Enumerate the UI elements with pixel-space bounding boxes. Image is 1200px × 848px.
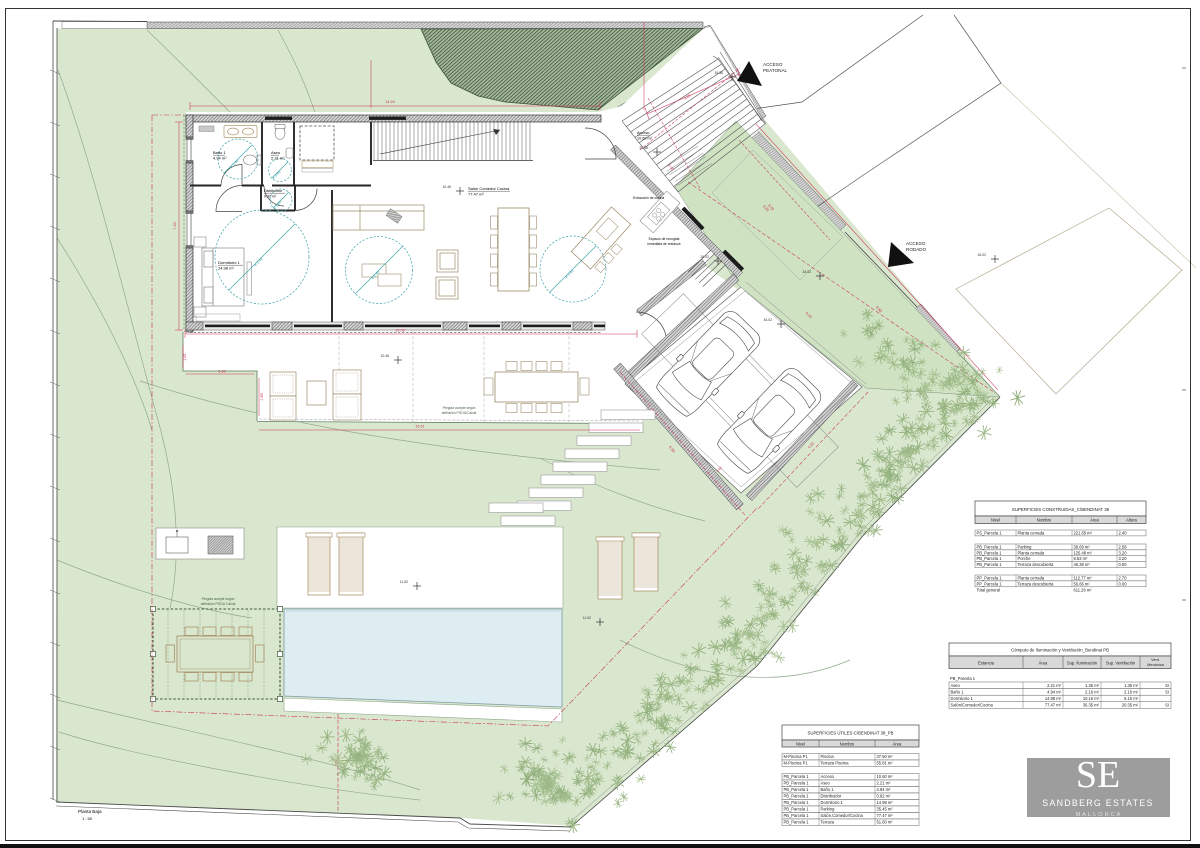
svg-text:PB_Parcela 1: PB_Parcela 1 bbox=[950, 676, 976, 681]
svg-text:221.65 m²: 221.65 m² bbox=[1074, 530, 1093, 535]
svg-text:2.21 m²: 2.21 m² bbox=[1047, 683, 1062, 688]
svg-text:SE: SE bbox=[1076, 754, 1120, 796]
svg-text:inmediata de residuos: inmediata de residuos bbox=[647, 242, 680, 246]
svg-text:51.60 m²: 51.60 m² bbox=[877, 820, 894, 825]
svg-text:1.35 m²: 1.35 m² bbox=[1085, 683, 1100, 688]
svg-text:4.94 m²: 4.94 m² bbox=[1047, 689, 1062, 694]
svg-text:2.40: 2.40 bbox=[1119, 530, 1128, 535]
svg-text:10.46: 10.46 bbox=[443, 185, 452, 189]
svg-text:Área: Área bbox=[893, 741, 902, 746]
svg-text:Área: Área bbox=[1039, 661, 1048, 666]
svg-text:PS_Parcela 1: PS_Parcela 1 bbox=[977, 530, 1003, 535]
svg-text:SI: SI bbox=[1165, 683, 1169, 688]
svg-text:4.94 m²: 4.94 m² bbox=[213, 155, 227, 160]
svg-text:Planta cerrada: Planta cerrada bbox=[1018, 550, 1045, 555]
svg-text:Baño 1: Baño 1 bbox=[213, 150, 226, 155]
svg-text:46.38 m²: 46.38 m² bbox=[1074, 562, 1091, 567]
svg-text:Altura: Altura bbox=[1126, 518, 1137, 523]
svg-text:Baño 1: Baño 1 bbox=[951, 689, 965, 694]
svg-text:0.00: 0.00 bbox=[1119, 562, 1128, 567]
svg-text:ACCESO: ACCESO bbox=[906, 241, 926, 246]
svg-text:11.52: 11.52 bbox=[400, 580, 408, 584]
svg-text:PB_Parcela 1: PB_Parcela 1 bbox=[784, 807, 810, 812]
svg-text:56.66 m²: 56.66 m² bbox=[1074, 581, 1091, 586]
svg-text:Acceso: Acceso bbox=[821, 774, 835, 779]
svg-text:SI: SI bbox=[1165, 703, 1169, 708]
svg-text:Parking: Parking bbox=[1018, 544, 1033, 549]
svg-text:10.16 m²: 10.16 m² bbox=[1083, 696, 1100, 701]
svg-text:2.70: 2.70 bbox=[1119, 575, 1128, 580]
svg-text:20.48: 20.48 bbox=[640, 146, 649, 150]
svg-text:39.69 m²: 39.69 m² bbox=[1074, 544, 1091, 549]
svg-text:RODADO: RODADO bbox=[906, 247, 927, 252]
svg-text:611.26 m²: 611.26 m² bbox=[1074, 587, 1093, 592]
svg-text:10.60 m²: 10.60 m² bbox=[637, 136, 653, 140]
svg-text:34.02: 34.02 bbox=[978, 253, 987, 257]
svg-text:15.96: 15.96 bbox=[395, 329, 405, 333]
svg-text:Pérgola cumple según: Pérgola cumple según bbox=[443, 406, 476, 410]
svg-text:Planta cerrada: Planta cerrada bbox=[1018, 575, 1045, 580]
svg-text:14.98 m²: 14.98 m² bbox=[1045, 696, 1062, 701]
svg-text:Dormitorio 1: Dormitorio 1 bbox=[218, 260, 241, 265]
svg-text:Aseo: Aseo bbox=[951, 683, 961, 688]
svg-text:PB_Parcela 1: PB_Parcela 1 bbox=[784, 794, 810, 799]
svg-text:35.45 m²: 35.45 m² bbox=[877, 807, 894, 812]
svg-text:10.60 m²: 10.60 m² bbox=[877, 774, 894, 779]
svg-text:3.60: 3.60 bbox=[218, 370, 225, 374]
svg-text:14.98 m²: 14.98 m² bbox=[877, 800, 894, 805]
svg-text:3.20: 3.20 bbox=[1119, 550, 1128, 555]
svg-text:definición PGOU Calvià: definición PGOU Calvià bbox=[201, 602, 236, 606]
svg-text:PB_Parcela 1: PB_Parcela 1 bbox=[977, 544, 1003, 549]
svg-text:20.35 m²: 20.35 m² bbox=[1122, 703, 1139, 708]
svg-text:MALLORCA: MALLORCA bbox=[1076, 812, 1123, 818]
svg-text:Terraza Piscina: Terraza Piscina bbox=[821, 761, 850, 766]
svg-text:Piscina: Piscina bbox=[821, 754, 835, 759]
svg-text:PB_Parcela 1: PB_Parcela 1 bbox=[977, 550, 1003, 555]
svg-text:PP_Parcela 1: PP_Parcela 1 bbox=[977, 575, 1003, 580]
svg-text:3.20: 3.20 bbox=[1119, 556, 1128, 561]
svg-text:15.61: 15.61 bbox=[415, 425, 425, 429]
svg-text:Planta cerrada: Planta cerrada bbox=[1018, 530, 1045, 535]
svg-text:37.50 m²: 37.50 m² bbox=[877, 754, 894, 759]
svg-text:SI: SI bbox=[1165, 689, 1169, 694]
svg-text:77.47 m²: 77.47 m² bbox=[877, 813, 894, 818]
svg-text:34.02: 34.02 bbox=[701, 255, 710, 259]
svg-text:Dormitorio 1: Dormitorio 1 bbox=[951, 696, 974, 701]
svg-text:2.21 m²: 2.21 m² bbox=[877, 781, 892, 786]
svg-text:SUPERFICIES CONSTRUIDAS_C/BEND: SUPERFICIES CONSTRUIDAS_C/BENDINAT 38 bbox=[1012, 507, 1110, 512]
svg-text:Terraza descubierta: Terraza descubierta bbox=[1018, 581, 1055, 586]
svg-text:6.16 m²: 6.16 m² bbox=[1124, 696, 1139, 701]
svg-text:Sup. Ventilación: Sup. Ventilación bbox=[1106, 661, 1136, 666]
svg-text:11.52: 11.52 bbox=[583, 616, 591, 620]
svg-text:PEATONAL: PEATONAL bbox=[763, 68, 788, 73]
svg-text:7.40: 7.40 bbox=[173, 222, 177, 229]
svg-text:PB_Parcela 1: PB_Parcela 1 bbox=[784, 774, 810, 779]
svg-text:36.35 m²: 36.35 m² bbox=[1083, 703, 1100, 708]
svg-text:77.47 m²: 77.47 m² bbox=[1045, 703, 1062, 708]
svg-text:PP_Parcela 1: PP_Parcela 1 bbox=[977, 581, 1003, 586]
svg-text:Salón/Comedor/Cocina: Salón/Comedor/Cocina bbox=[951, 703, 994, 708]
svg-text:Salón.Comedor/Cocina: Salón.Comedor/Cocina bbox=[821, 813, 864, 818]
svg-text:1.85: 1.85 bbox=[260, 393, 264, 400]
svg-text:55.81 m²: 55.81 m² bbox=[877, 761, 894, 766]
svg-text:Área: Área bbox=[1090, 518, 1099, 523]
svg-text:M-Piscina P1: M-Piscina P1 bbox=[784, 754, 809, 759]
svg-text:Salón Comedor Cocina: Salón Comedor Cocina bbox=[468, 186, 510, 191]
svg-text:Sup. Iluminación: Sup. Iluminación bbox=[1067, 661, 1098, 666]
svg-text:0.00: 0.00 bbox=[1119, 581, 1128, 586]
svg-text:ACCESO: ACCESO bbox=[763, 62, 783, 67]
svg-text:Cómputo de Iluminación y Venti: Cómputo de Iluminación y Ventilación_Ben… bbox=[1011, 648, 1109, 653]
svg-text:10.46: 10.46 bbox=[381, 354, 390, 358]
svg-text:34.36: 34.36 bbox=[715, 71, 724, 75]
svg-text:125.48 m²: 125.48 m² bbox=[1074, 550, 1093, 555]
svg-text:Nivel: Nivel bbox=[991, 518, 1000, 523]
svg-text:Aseo: Aseo bbox=[271, 150, 281, 155]
svg-text:PB_Parcela 1: PB_Parcela 1 bbox=[784, 820, 810, 825]
svg-text:Terraza descubierta: Terraza descubierta bbox=[1018, 562, 1055, 567]
svg-text:1.61: 1.61 bbox=[183, 353, 187, 360]
svg-text:2.16 m²: 2.16 m² bbox=[1085, 689, 1100, 694]
svg-text:14.98 m²: 14.98 m² bbox=[218, 265, 234, 270]
svg-text:4.94 m²: 4.94 m² bbox=[877, 787, 892, 792]
svg-text:M-Piscina P1: M-Piscina P1 bbox=[784, 761, 809, 766]
svg-text:PB_Parcela 1: PB_Parcela 1 bbox=[977, 556, 1003, 561]
svg-text:2.21 m²: 2.21 m² bbox=[271, 155, 285, 160]
svg-text:Espacio de recogida: Espacio de recogida bbox=[649, 237, 680, 241]
svg-text:14.40: 14.40 bbox=[385, 100, 395, 104]
svg-text:Nivel: Nivel bbox=[796, 741, 805, 746]
svg-text:Estancia: Estancia bbox=[978, 661, 994, 666]
svg-text:Mecánica: Mecánica bbox=[1147, 662, 1164, 667]
svg-text:Pérgola cumple según: Pérgola cumple según bbox=[202, 597, 235, 601]
svg-text:Nombre: Nombre bbox=[840, 741, 855, 746]
svg-text:77.47 m²: 77.47 m² bbox=[468, 191, 484, 196]
svg-text:Nombre: Nombre bbox=[1037, 518, 1052, 523]
svg-text:Aseo: Aseo bbox=[821, 781, 831, 786]
svg-text:Distribuidor: Distribuidor bbox=[821, 794, 842, 799]
svg-text:1 : 50: 1 : 50 bbox=[82, 816, 93, 821]
svg-text:Extracción de cocina: Extracción de cocina bbox=[633, 196, 664, 200]
svg-text:Planta Baja: Planta Baja bbox=[78, 809, 102, 814]
svg-text:112.77 m²: 112.77 m² bbox=[1074, 575, 1093, 580]
svg-text:0.92 m²: 0.92 m² bbox=[264, 194, 277, 198]
svg-text:2.58: 2.58 bbox=[1119, 544, 1128, 549]
svg-text:Acceso: Acceso bbox=[637, 131, 649, 135]
svg-text:PB_Parcela 1: PB_Parcela 1 bbox=[784, 787, 810, 792]
svg-text:34.02: 34.02 bbox=[764, 318, 773, 322]
svg-text:SUPERFICIES ÚTILES-C/BENDINAT: SUPERFICIES ÚTILES-C/BENDINAT 38_PB bbox=[807, 731, 893, 736]
svg-text:Distribuidor: Distribuidor bbox=[264, 189, 283, 193]
svg-text:Parking: Parking bbox=[821, 807, 836, 812]
svg-text:34.02: 34.02 bbox=[803, 270, 812, 274]
svg-text:Porche: Porche bbox=[1018, 556, 1032, 561]
svg-text:0.92 m²: 0.92 m² bbox=[877, 794, 892, 799]
svg-text:8.63 m²: 8.63 m² bbox=[1074, 556, 1089, 561]
svg-text:PB_Parcela 1: PB_Parcela 1 bbox=[784, 813, 810, 818]
svg-text:PB_Parcela 1: PB_Parcela 1 bbox=[784, 800, 810, 805]
svg-text:Dormitorio 1: Dormitorio 1 bbox=[821, 800, 844, 805]
svg-text:Terraza: Terraza bbox=[821, 820, 835, 825]
svg-text:definición PGOU/Calvià: definición PGOU/Calvià bbox=[442, 411, 477, 415]
svg-text:Total general: Total general bbox=[977, 587, 1001, 592]
svg-text:1.35 m²: 1.35 m² bbox=[1124, 683, 1139, 688]
svg-text:PB_Parcela 1: PB_Parcela 1 bbox=[977, 562, 1003, 567]
svg-text:SANDBERG ESTATES: SANDBERG ESTATES bbox=[1042, 798, 1153, 808]
svg-text:Baño 1: Baño 1 bbox=[821, 787, 835, 792]
svg-text:PB_Parcela 1: PB_Parcela 1 bbox=[784, 781, 810, 786]
svg-text:2.16 m²: 2.16 m² bbox=[1124, 689, 1139, 694]
